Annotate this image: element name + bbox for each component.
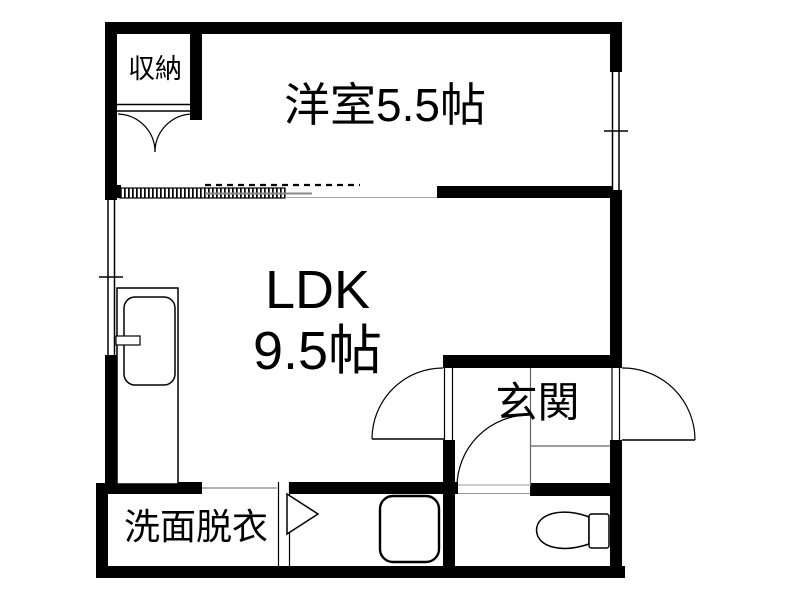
toilet-bowl xyxy=(537,512,590,548)
front-door-arc xyxy=(622,368,695,440)
kitchen-faucet xyxy=(116,336,140,345)
ldk-label-line2: 9.5帖 xyxy=(205,321,430,382)
front-door-icon xyxy=(610,368,695,440)
wall-left-mid xyxy=(105,355,117,485)
sliding-door-track-icon xyxy=(120,185,437,198)
wall-left-lower xyxy=(96,483,108,578)
bathtub-icon xyxy=(380,496,439,562)
wall-right-lower xyxy=(610,440,622,578)
washroom-label: 洗面脱衣 xyxy=(112,505,280,549)
ldk-label: LDK 9.5帖 xyxy=(205,260,430,382)
wall-top xyxy=(105,22,622,34)
western-room-label: 洋室5.5帖 xyxy=(200,76,570,134)
folding-door-triangle xyxy=(287,494,318,534)
bath-folding-door-icon xyxy=(279,482,319,566)
closet-label: 収納 xyxy=(117,52,193,86)
wall-divider-left-stub xyxy=(105,185,121,198)
genkan-label: 玄関 xyxy=(455,378,620,428)
wall-right-upper xyxy=(610,22,622,72)
toilet-icon xyxy=(537,512,610,548)
wall-right-mid xyxy=(610,190,622,368)
wall-divider-right xyxy=(437,186,612,198)
ldk-label-line1: LDK xyxy=(205,260,430,321)
wall-genkan-bottom xyxy=(530,483,622,496)
wall-genkan-left xyxy=(443,440,455,578)
closet-double-doors-icon xyxy=(117,105,202,153)
kitchen-sink-icon xyxy=(116,288,178,484)
toilet-tank xyxy=(589,514,609,548)
washroom-opening xyxy=(202,483,277,493)
wall-genkan-top xyxy=(443,355,622,368)
closet-door-arc-right xyxy=(155,114,192,152)
wall-bath-top xyxy=(290,482,458,494)
wall-bottom xyxy=(96,566,625,578)
window-right-icon xyxy=(604,72,628,190)
closet-door-arc-left xyxy=(118,114,155,152)
wall-left-upper xyxy=(105,22,117,200)
floorplan-canvas: 収納 洋室5.5帖 LDK 9.5帖 玄関 洗面脱衣 xyxy=(0,0,800,600)
